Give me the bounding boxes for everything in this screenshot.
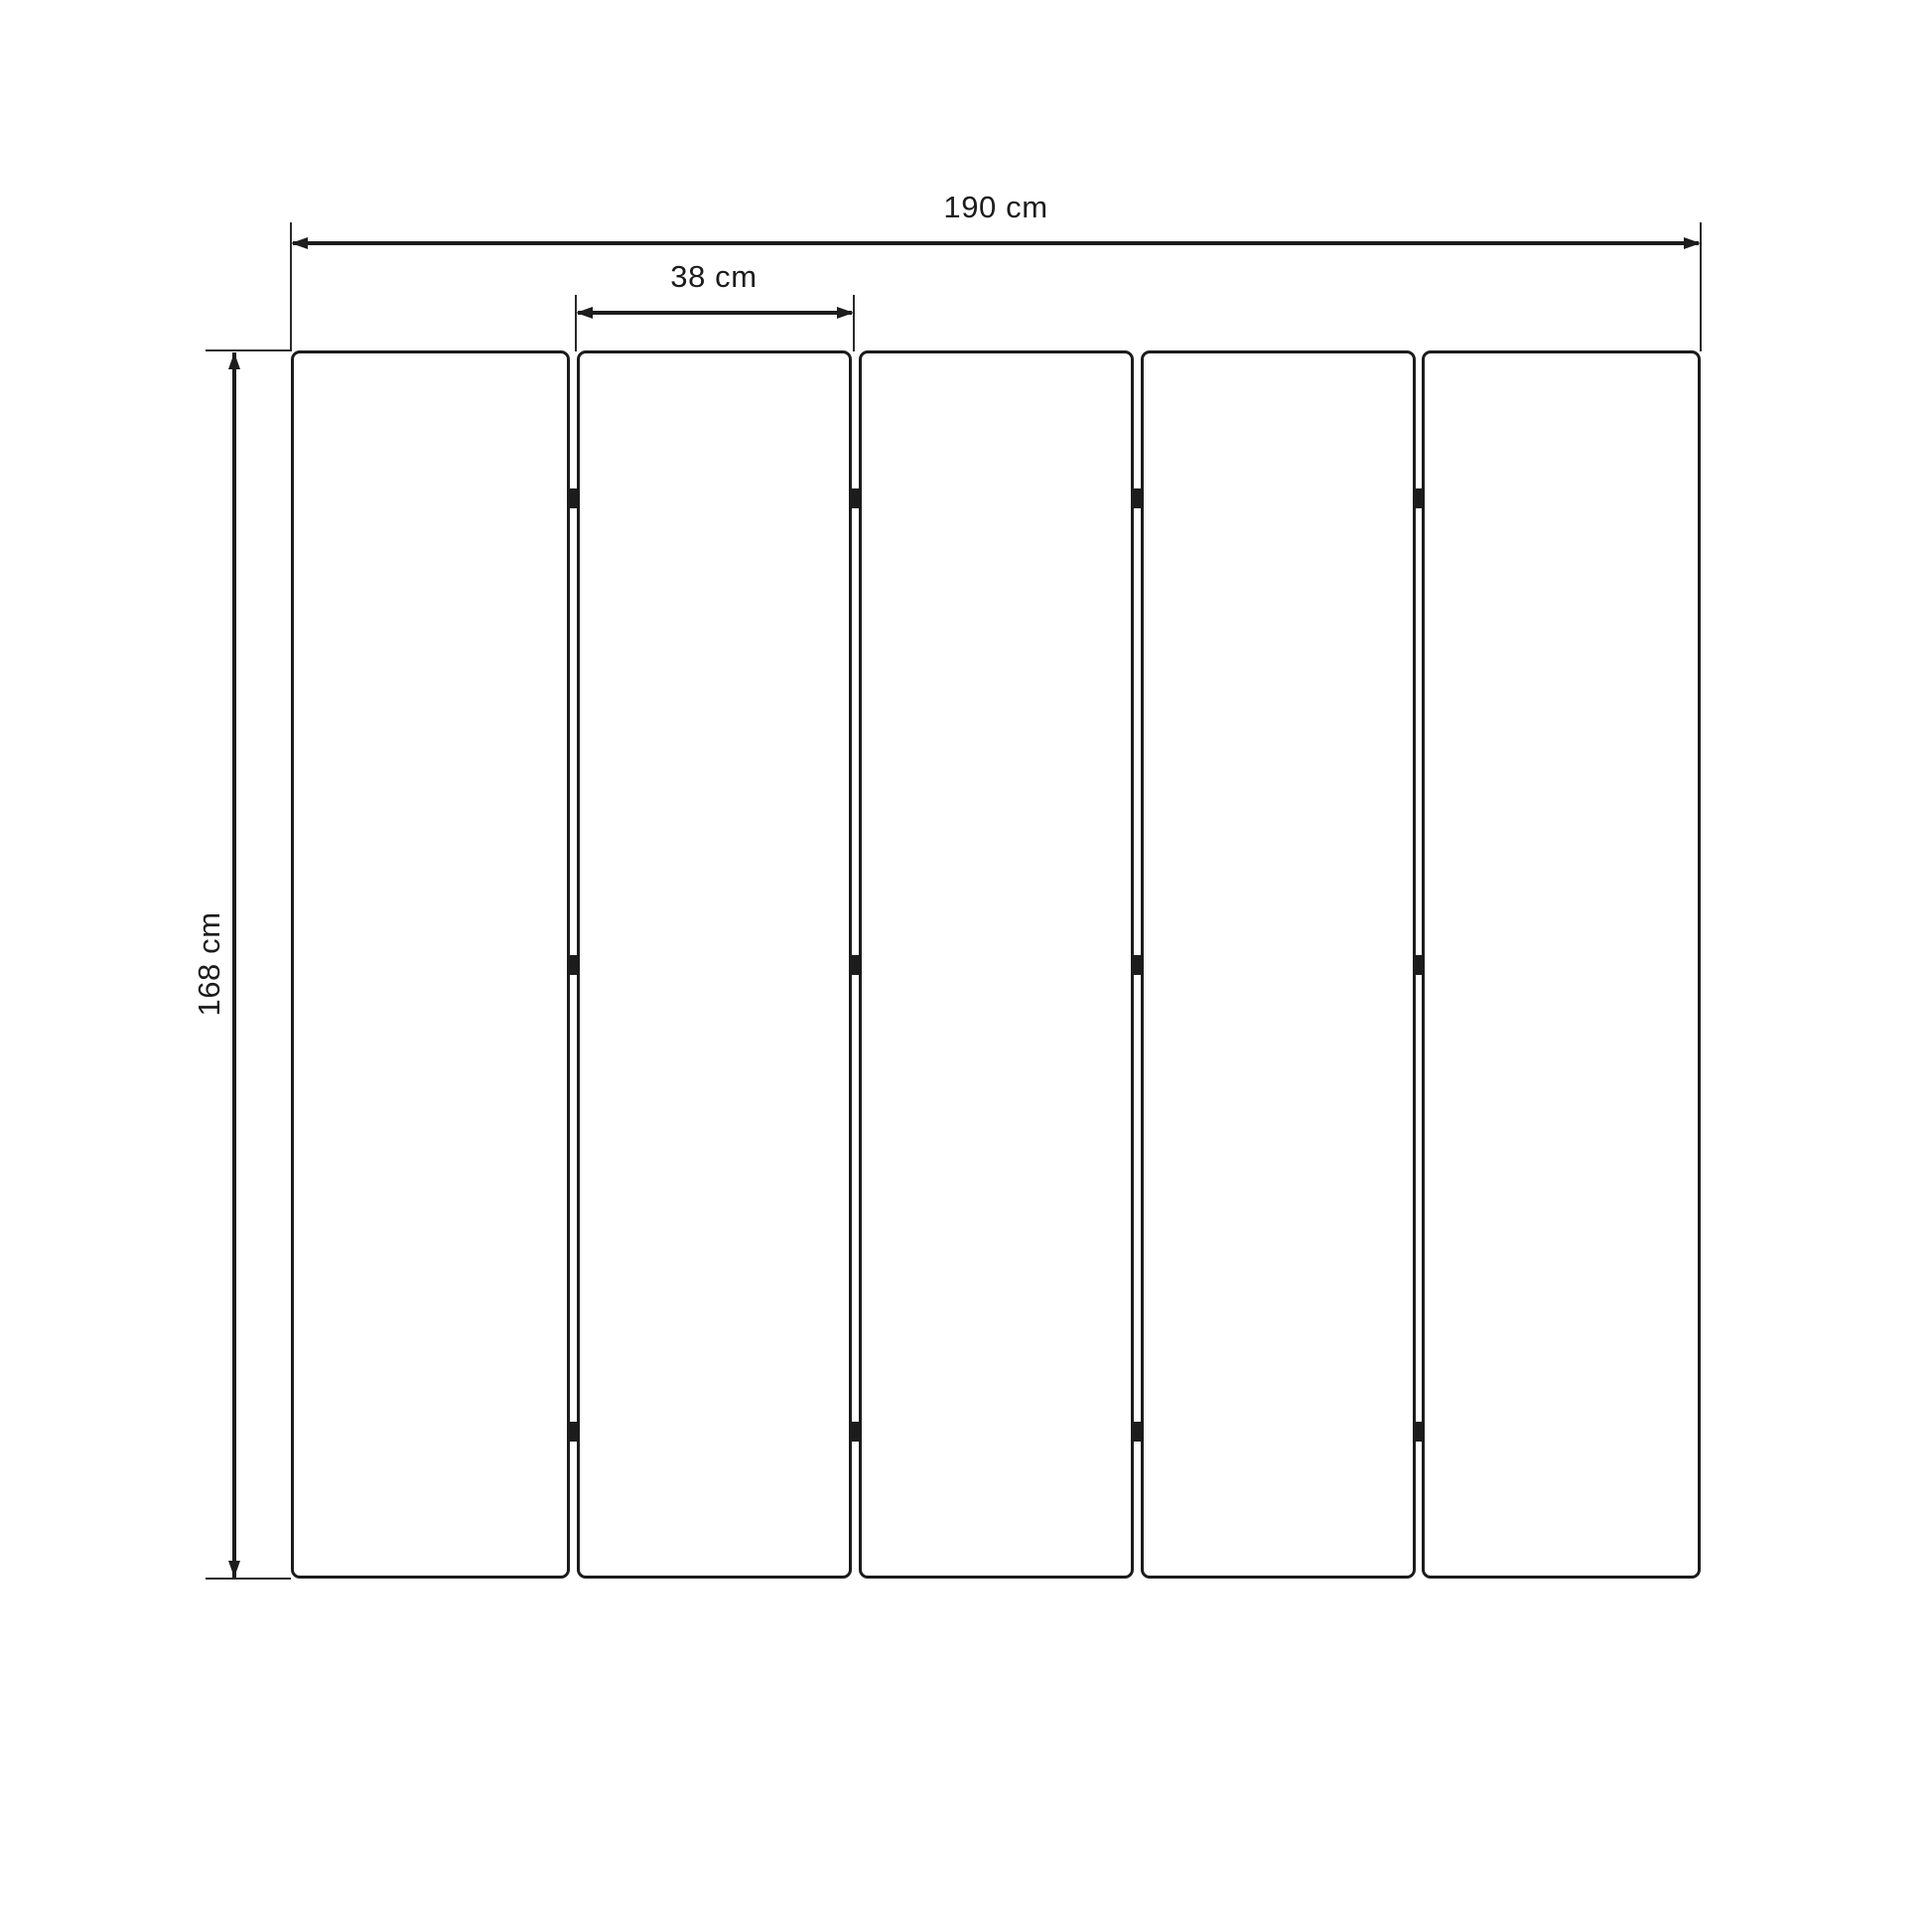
hinge — [567, 488, 579, 508]
height-dimension-line — [232, 352, 236, 1578]
panel-4 — [1141, 350, 1416, 1579]
arrowhead-right-icon — [837, 307, 854, 319]
hinge — [1131, 488, 1143, 508]
total-width-dimension-label: 190 cm — [943, 190, 1047, 225]
arrowhead-left-icon — [576, 307, 593, 319]
hinge — [1413, 955, 1425, 975]
panel-width-dimension-line — [578, 311, 852, 315]
total-width-extension-line-left — [290, 222, 292, 351]
total-width-extension-line-right — [1700, 222, 1702, 351]
panel-5 — [1422, 350, 1701, 1579]
hinge — [849, 488, 861, 508]
panel-1 — [291, 350, 570, 1579]
arrowhead-down-icon — [228, 1561, 240, 1578]
height-extension-line-top — [206, 349, 291, 351]
panel-3 — [859, 350, 1134, 1579]
height-extension-line-bottom — [206, 1578, 291, 1580]
hinge — [849, 955, 861, 975]
panel-width-extension-line-left — [575, 295, 577, 351]
arrowhead-up-icon — [228, 352, 240, 369]
hinge — [1131, 955, 1143, 975]
height-dimension-label: 168 cm — [192, 911, 227, 1016]
hinge — [1413, 1422, 1425, 1442]
hinge — [567, 955, 579, 975]
panel-width-dimension-label: 38 cm — [670, 259, 757, 295]
dimension-drawing-canvas: 190 cm 38 cm 168 cm — [0, 0, 1932, 1932]
hinge — [1131, 1422, 1143, 1442]
hinge — [1413, 488, 1425, 508]
arrowhead-left-icon — [291, 237, 308, 249]
total-width-dimension-line — [293, 241, 1699, 245]
panel-width-extension-line-right — [853, 295, 855, 351]
panel-2 — [577, 350, 852, 1579]
hinge — [849, 1422, 861, 1442]
arrowhead-right-icon — [1684, 237, 1701, 249]
hinge — [567, 1422, 579, 1442]
